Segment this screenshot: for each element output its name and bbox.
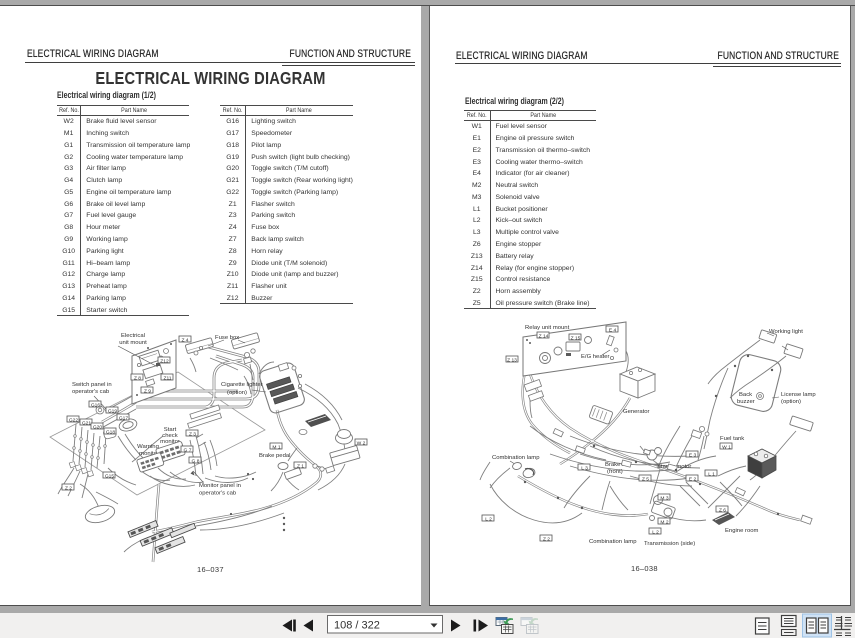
svg-text:Warning: Warning	[137, 444, 159, 450]
svg-text:Transmission (side): Transmission (side)	[644, 541, 695, 547]
svg-text:M 1: M 1	[272, 444, 280, 450]
svg-text:operator's cab: operator's cab	[72, 389, 110, 395]
svg-text:Z 6: Z 6	[719, 507, 726, 513]
svg-text:G17: G17	[119, 415, 129, 421]
svg-text:L 2: L 2	[652, 529, 659, 535]
svg-text:E 4: E 4	[609, 327, 617, 333]
svg-text:Z 14: Z 14	[539, 333, 549, 339]
svg-text:E/G heater: E/G heater	[581, 354, 610, 360]
svg-text:Generator: Generator	[623, 409, 650, 415]
svg-text:Z11: Z11	[163, 375, 171, 381]
svg-text:Back: Back	[739, 392, 752, 398]
svg-text:Z 2: Z 2	[65, 485, 72, 491]
svg-text:Brake pedal: Brake pedal	[259, 453, 290, 459]
svg-text:Engine room: Engine room	[725, 528, 758, 534]
svg-text:L 2: L 2	[485, 516, 492, 522]
svg-text:Z 5: Z 5	[642, 476, 649, 482]
svg-text:Monitor panel in: Monitor panel in	[199, 483, 241, 489]
svg-text:Fuse box: Fuse box	[215, 335, 239, 341]
svg-text:G 8: G 8	[192, 458, 200, 464]
svg-text:Relay unit mount: Relay unit mount	[525, 325, 570, 331]
svg-text:108 / 322: 108 / 322	[334, 620, 380, 632]
svg-text:Z 1: Z 1	[297, 463, 304, 469]
svg-text:Combination lamp: Combination lamp	[492, 455, 540, 461]
svg-text:unit mount: unit mount	[119, 340, 147, 346]
svg-text:Z 13: Z 13	[507, 357, 517, 363]
svg-text:operator's cab: operator's cab	[199, 491, 237, 497]
svg-text:(option): (option)	[781, 399, 801, 405]
svg-text:G15: G15	[105, 473, 115, 479]
svg-text:Z 3: Z 3	[189, 431, 196, 437]
svg-text:G21: G21	[82, 420, 92, 426]
svg-text:Fuel tank: Fuel tank	[720, 436, 744, 442]
svg-text:G22: G22	[69, 417, 79, 423]
svg-text:E 3: E 3	[689, 452, 697, 458]
svg-text:Z 9: Z 9	[144, 388, 151, 394]
svg-text:E 2: E 2	[689, 476, 697, 482]
svg-text:M 3: M 3	[660, 495, 668, 501]
svg-text:G16: G16	[91, 402, 101, 408]
svg-text:W 1: W 1	[722, 444, 731, 450]
svg-text:(front): (front)	[607, 469, 623, 475]
svg-text:buzzer: buzzer	[737, 399, 755, 405]
svg-text:Z12: Z12	[160, 358, 169, 364]
svg-text:Switch panel in: Switch panel in	[72, 382, 112, 388]
svg-text:L 3: L 3	[581, 465, 588, 471]
svg-text:Z 15: Z 15	[571, 335, 581, 341]
svg-text:Z 2: Z 2	[543, 536, 550, 542]
svg-text:G 7: G 7	[184, 447, 192, 453]
svg-text:G20: G20	[93, 424, 103, 430]
svg-text:Cigarette lighter: Cigarette lighter	[221, 382, 263, 388]
svg-text:M 2: M 2	[660, 519, 668, 525]
svg-text:License lamp: License lamp	[781, 392, 816, 398]
svg-text:L 1: L 1	[708, 471, 715, 477]
svg-text:Z 4: Z 4	[181, 337, 188, 343]
svg-text:Z 8: Z 8	[134, 375, 141, 381]
svg-text:W 2: W 2	[357, 440, 366, 446]
svg-text:Electrical: Electrical	[121, 333, 145, 339]
svg-text:(option): (option)	[227, 390, 247, 396]
svg-text:G18: G18	[106, 429, 116, 435]
svg-text:G19: G19	[108, 408, 118, 414]
svg-text:Combination lamp: Combination lamp	[589, 539, 637, 545]
